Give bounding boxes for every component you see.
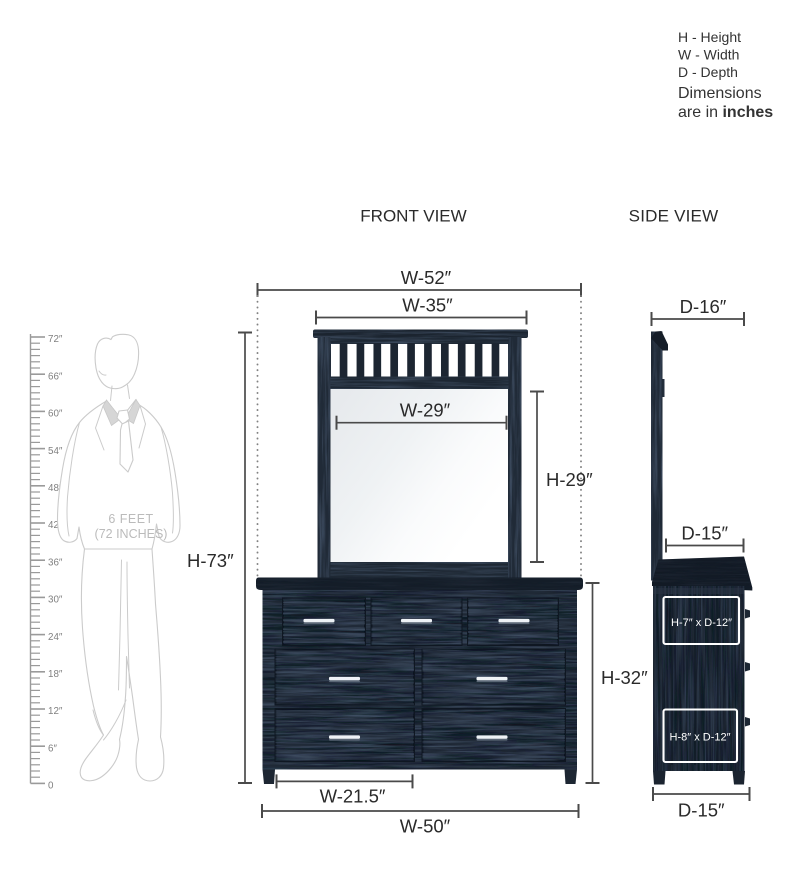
svg-text:24″: 24″ [48,632,63,643]
svg-text:0: 0 [48,781,54,792]
svg-text:W-35″: W-35″ [402,295,453,316]
svg-text:Dimensions: Dimensions [678,85,762,102]
svg-text:H-8″ x D-12″: H-8″ x D-12″ [670,732,731,744]
svg-text:are in inches: are in inches [678,104,773,121]
svg-text:D-15″: D-15″ [681,523,728,544]
svg-text:18″: 18″ [48,669,63,680]
svg-text:H-29″: H-29″ [546,469,593,490]
svg-text:D - Depth: D - Depth [678,64,738,80]
svg-text:W-21.5″: W-21.5″ [320,786,386,807]
svg-text:FRONT VIEW: FRONT VIEW [360,207,466,226]
svg-text:W-52″: W-52″ [401,267,452,288]
svg-text:SIDE VIEW: SIDE VIEW [629,207,719,226]
svg-text:66″: 66″ [48,371,63,382]
svg-text:W-29″: W-29″ [400,400,451,421]
svg-text:H - Height: H - Height [678,29,741,45]
svg-text:6″: 6″ [48,743,57,754]
svg-text:36″: 36″ [48,557,63,568]
svg-text:60″: 60″ [48,409,63,420]
svg-text:54″: 54″ [48,446,63,457]
svg-text:12″: 12″ [48,706,63,717]
svg-text:H-32″: H-32″ [601,667,648,688]
svg-text:D-15″: D-15″ [678,800,725,821]
svg-text:30″: 30″ [48,595,63,606]
svg-text:H-73″: H-73″ [187,550,234,571]
svg-text:D-16″: D-16″ [680,296,727,317]
svg-text:H-7″ x D-12″: H-7″ x D-12″ [671,617,732,629]
svg-text:72″: 72″ [48,334,63,345]
svg-text:6 FEET: 6 FEET [108,512,153,526]
svg-text:W - Width: W - Width [678,47,739,63]
svg-text:W-50″: W-50″ [400,816,451,837]
svg-text:(72 INCHES): (72 INCHES) [95,527,168,541]
